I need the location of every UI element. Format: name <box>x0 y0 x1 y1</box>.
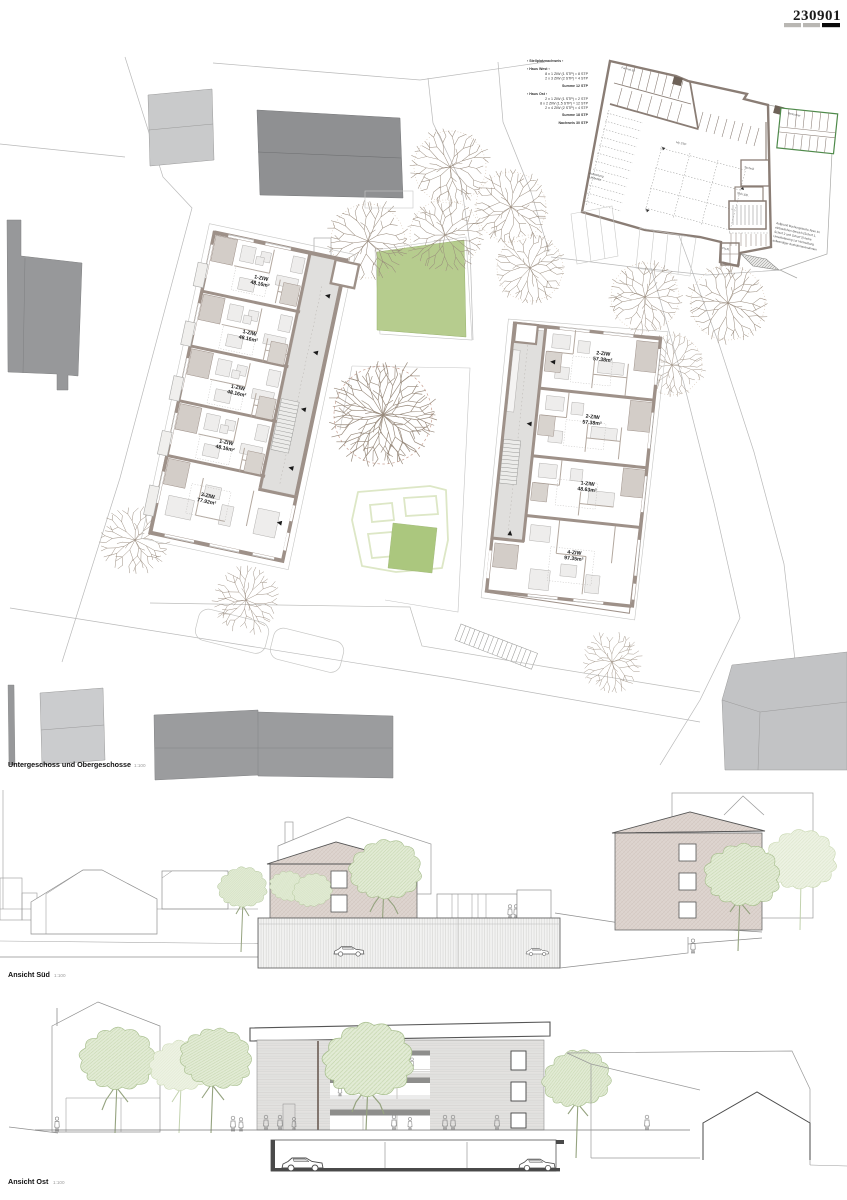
svg-text:1:100: 1:100 <box>54 973 66 978</box>
svg-text:Nachweis 30 STP: Nachweis 30 STP <box>558 121 588 125</box>
svg-text:1:100: 1:100 <box>134 763 146 768</box>
svg-text:Ansicht Ost: Ansicht Ost <box>8 1177 49 1186</box>
svg-text:Summe 12 STP: Summe 12 STP <box>562 84 589 88</box>
svg-text:230901: 230901 <box>793 8 841 24</box>
svg-text:2 x 1 ZIW (1 STP) = 2 STP: 2 x 1 ZIW (1 STP) = 2 STP <box>545 97 588 101</box>
svg-text:‹ Stellplatznachweis ‹: ‹ Stellplatznachweis ‹ <box>527 59 564 63</box>
svg-text:2 x 4 ZIW (2 STP) = 4 STP: 2 x 4 ZIW (2 STP) = 4 STP <box>545 106 588 110</box>
svg-text:Ansicht Süd: Ansicht Süd <box>8 970 50 979</box>
svg-text:Summe 18 STP: Summe 18 STP <box>562 113 589 117</box>
svg-text:Untergeschoss und Obergeschoss: Untergeschoss und Obergeschosse <box>8 760 131 769</box>
svg-text:1:100: 1:100 <box>53 1180 65 1185</box>
svg-text:‹ Haus Ost ‹: ‹ Haus Ost ‹ <box>527 92 548 96</box>
svg-text:‹ Haus West ‹: ‹ Haus West ‹ <box>527 67 551 71</box>
svg-text:8 x 2 ZIW (1.5 STP) = 12 STP: 8 x 2 ZIW (1.5 STP) = 12 STP <box>540 101 588 105</box>
svg-text:8 x 1 ZIW (1 STP) = 8 STP: 8 x 1 ZIW (1 STP) = 8 STP <box>545 72 588 76</box>
svg-text:2 x 3 ZIW (2 STP) = 4 STP: 2 x 3 ZIW (2 STP) = 4 STP <box>545 76 588 80</box>
